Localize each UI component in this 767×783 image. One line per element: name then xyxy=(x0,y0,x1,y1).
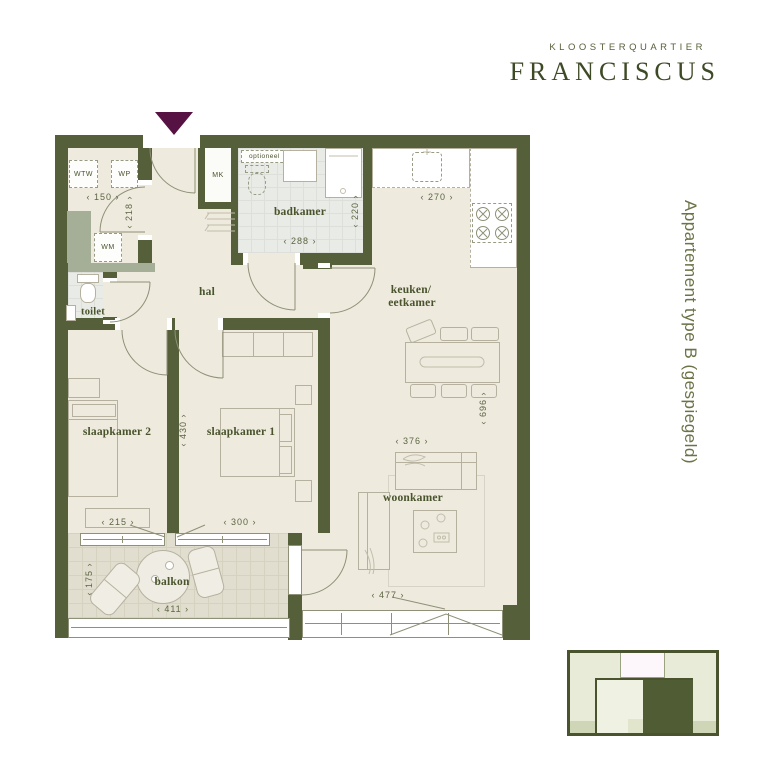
apartment-type-label: Appartement type B (gespiegeld) xyxy=(680,200,700,580)
room-label-keuken-2: eetkamer xyxy=(388,297,436,309)
room-label-toilet: toilet xyxy=(81,307,105,318)
room-label-woonkamer: woonkamer xyxy=(383,492,443,504)
building-locator-map xyxy=(567,650,719,736)
room-label-slaapkamer1: slaapkamer 1 xyxy=(207,426,275,438)
brand-title: FRANCISCUS xyxy=(480,57,720,87)
map-highlighted-apartment xyxy=(643,680,693,733)
dim-entree-width: ‹ 150 › xyxy=(86,192,119,202)
dim-entree-depth: ‹ 218 › xyxy=(124,195,134,228)
dim-slaapkamer2-width: ‹ 215 › xyxy=(101,517,134,527)
room-label-hal: hal xyxy=(199,286,215,298)
dim-balkon-depth: ‹ 175 › xyxy=(84,562,94,595)
dim-keuken-depth: ‹ 696 › xyxy=(478,391,488,424)
brand-logo: KLOOSTERQUARTIER FRANCISCUS xyxy=(480,42,720,87)
dim-woonkamer-window: ‹ 477 › xyxy=(371,590,404,600)
dim-badkamer-width: ‹ 288 › xyxy=(283,236,316,246)
dim-balkon-width: ‹ 411 › xyxy=(157,604,189,614)
room-label-badkamer: badkamer xyxy=(274,206,326,218)
room-label-slaapkamer2: slaapkamer 2 xyxy=(83,426,151,438)
dim-slaapkamer-depth: ‹ 430 › xyxy=(178,413,188,446)
dim-badkamer-depth: ‹ 220 › xyxy=(350,194,360,227)
brand-subtitle: KLOOSTERQUARTIER xyxy=(480,42,720,53)
dim-woonkamer-width: ‹ 376 › xyxy=(395,436,428,446)
floor-plan: WTW WP WM MK optioneel xyxy=(55,135,530,640)
room-label-keuken-1: keuken/ xyxy=(391,284,431,296)
room-label-balkon: balkon xyxy=(154,576,189,588)
entrance-arrow-icon xyxy=(155,112,193,135)
map-balcony-right xyxy=(693,721,716,733)
map-balcony-notch xyxy=(628,719,643,733)
dim-keuken-width: ‹ 270 › xyxy=(420,192,453,202)
map-balcony-left xyxy=(570,721,595,733)
dim-slaapkamer1-width: ‹ 300 › xyxy=(223,517,256,527)
map-unit-top xyxy=(620,653,665,678)
